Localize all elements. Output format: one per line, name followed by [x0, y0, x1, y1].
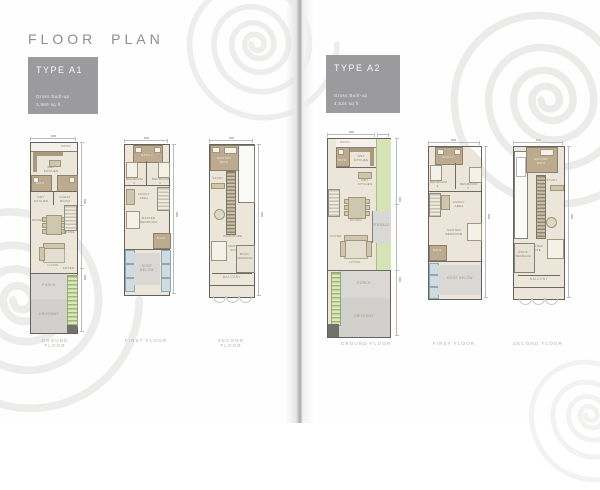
plan-outline: PATIO BATH WET KITCHEN DRY KITCHEN DININ…	[327, 138, 391, 338]
dimension-line	[173, 144, 177, 294]
planter-strip	[331, 272, 341, 326]
bed	[211, 241, 227, 261]
study-desk	[211, 183, 225, 189]
floor-caption-a2-second: SECOND FLOOR	[513, 341, 563, 346]
awning-arc	[213, 296, 226, 303]
floorplan-a1-first: BATH 2 BEDROOM 3 BEDROOM 2 FAMILY AREA M…	[124, 138, 178, 298]
wardrobe-cabinets	[226, 171, 236, 235]
wall	[146, 161, 147, 185]
staircase	[429, 193, 441, 217]
planter-strip	[67, 275, 78, 327]
dining-chair	[42, 223, 47, 228]
utility-block	[328, 324, 339, 337]
dimension-line	[81, 142, 85, 332]
wall	[53, 191, 54, 205]
room-label-study: STUDY	[546, 179, 558, 183]
awning-arc	[545, 298, 558, 305]
bath-fixture	[69, 177, 75, 183]
plan-outline: BATH 2 BEDROOM 3 BEDROOM 2 FAMILY AREA M…	[124, 144, 170, 296]
skylight	[516, 157, 526, 177]
floor-caption-a1-first: FIRST FLOOR	[124, 338, 168, 343]
bed	[467, 223, 482, 241]
kitchen-cabinet	[370, 152, 374, 166]
room-label-roof-terrace: ROOF TERRACE	[237, 253, 252, 260]
dining-chair	[42, 229, 47, 234]
bath-fixture	[212, 147, 220, 153]
type-a2-label: TYPE A2	[334, 63, 381, 73]
sofa	[340, 241, 346, 257]
bath-fixture	[454, 149, 461, 155]
awning-arc	[532, 298, 545, 305]
room-label-driveway: DRIVEWAY	[37, 313, 61, 317]
floorplan-a2-second: MASTER BATH STUDY MASTER SUITE ROOF TERR…	[513, 140, 573, 310]
room-label-balcony: BALCONY	[220, 276, 244, 280]
gross-builtup-value-a2: 4,534 sq ft	[334, 100, 367, 107]
awning-arc	[519, 298, 532, 305]
room-label-bedroom2: BEDROOM 2	[460, 183, 476, 190]
bed	[547, 239, 564, 259]
brochure-spread: FLOOR PLAN TYPE A1 Gross Built-up 3,966 …	[0, 0, 600, 423]
dimension-line	[396, 138, 400, 336]
floor-caption-a2-ground: GROUND FLOOR	[336, 341, 396, 346]
type-a1-label: TYPE A1	[36, 65, 83, 75]
sofa	[126, 189, 135, 205]
wall	[336, 167, 376, 168]
dining-table	[46, 215, 62, 235]
awning-arc	[226, 296, 239, 303]
wall	[31, 191, 77, 192]
room-label-family: FAMILY AREA	[136, 193, 152, 200]
bathtub	[540, 149, 554, 156]
wall	[210, 285, 254, 286]
room-label-roof-below: ROOF BELOW	[135, 265, 159, 273]
staircase	[64, 205, 77, 231]
bed	[126, 211, 140, 229]
room-label-wardrobe: WARDROBE	[223, 235, 237, 239]
glass-louvre	[161, 250, 171, 264]
room-label-bath2: BATH 2	[137, 154, 157, 158]
room-label-dining: DINING	[32, 219, 44, 223]
dining-chair	[344, 205, 349, 210]
type-a1-gross: Gross Built-up 3,966 sq ft	[36, 93, 69, 108]
spiral-watermark-top-center	[171, 0, 341, 129]
side-garden-strip	[376, 139, 391, 270]
room-label-foyer: FOYER	[330, 235, 342, 239]
dining-chair	[365, 211, 370, 216]
room-label-wet-kitchen: WET KITCHEN	[352, 155, 370, 162]
utility-block	[67, 325, 77, 333]
awning-arc	[239, 296, 252, 303]
wall	[125, 185, 169, 186]
room-label-bath: BATH	[35, 182, 45, 186]
living-rug	[43, 247, 65, 263]
wall	[429, 261, 481, 262]
dining-table	[348, 197, 366, 219]
room-label-balcony: BALCONY	[526, 278, 552, 282]
room-label-family: FAMILY AREA	[451, 201, 467, 208]
lounge-chair	[546, 217, 557, 228]
floor-caption-a1-ground: GROUND FLOOR	[30, 338, 80, 348]
plan-outline: MASTER BATH STUDY MASTER SUITE ROOF TERR…	[513, 146, 565, 300]
room-label-bath: BATH	[432, 249, 442, 253]
sofa	[366, 241, 372, 257]
room-label-master-bath: MASTER BATH	[215, 157, 233, 164]
room-label-porch: PORCH	[353, 282, 375, 286]
room-label-dry-kitchen: DRY KITCHEN	[356, 179, 374, 186]
living-rug	[344, 239, 368, 259]
roof-void	[238, 145, 255, 203]
room-label-dry-kitchen: DRY KITCHEN	[32, 196, 50, 203]
floorplan-a1-ground: PATIO WET KITCHEN BATH DRY KITCHEN GUEST…	[30, 136, 86, 336]
type-a1-card: TYPE A1 Gross Built-up 3,966 sq ft	[28, 57, 98, 114]
sofa	[43, 243, 65, 249]
wall	[429, 191, 481, 192]
dimension-line	[568, 146, 572, 298]
gross-builtup-label-a2: Gross Built-up	[334, 92, 367, 99]
gross-builtup-label-a1: Gross Built-up	[36, 93, 69, 100]
glass-louvre	[161, 278, 171, 292]
room-label-roof-below: ROOF BELOW	[447, 277, 473, 281]
room-label-foyer: FOYER	[62, 267, 75, 271]
dining-chair	[365, 199, 370, 204]
room-label-bath: BATH	[156, 237, 166, 241]
room-label-roof-terrace: ROOF TERRACE	[515, 251, 531, 258]
dining-chair	[365, 205, 370, 210]
page-fold	[286, 0, 314, 423]
dining-chair	[344, 199, 349, 204]
room-label-study: STUDY	[212, 177, 224, 181]
floor-caption-a1-second: SECOND FLOOR	[209, 338, 253, 348]
room-label-driveway: DRIVEWAY	[350, 315, 378, 319]
sofa	[344, 235, 368, 241]
bed	[126, 162, 138, 178]
glass-louvre	[161, 264, 171, 278]
room-label-master-bedroom: MASTER BEDROOM	[140, 217, 157, 224]
study-desk	[550, 185, 564, 191]
room-label-wet-kitchen: WET KITCHEN	[41, 166, 61, 173]
floorplan-a2-ground: PATIO BATH WET KITCHEN DRY KITCHEN DININ…	[327, 132, 403, 342]
bath-fixture	[338, 149, 344, 155]
plan-outline: PATIO WET KITCHEN BATH DRY KITCHEN GUEST…	[30, 142, 78, 334]
room-label-dining: DINING	[348, 219, 364, 223]
bed	[469, 167, 482, 183]
room-label-bath2: BATH 2	[438, 156, 458, 160]
type-a2-card: TYPE A2 Gross Built-up 4,534 sq ft	[326, 55, 400, 113]
bathtub	[224, 147, 237, 154]
bath-fixture	[154, 147, 161, 153]
kitchen-cabinet	[33, 152, 63, 156]
staircase	[328, 189, 340, 217]
room-label-terrace: TERRACE	[372, 224, 389, 228]
wall	[455, 163, 456, 189]
floor-caption-a2-first: FIRST FLOOR	[428, 341, 480, 346]
room-label-store: STORE	[63, 231, 75, 235]
wardrobe-cabinets	[536, 175, 546, 239]
wall	[514, 287, 564, 288]
staircase	[157, 187, 170, 211]
plan-outline: BATH 2 BEDROOM 3 BEDROOM 2 FAMILY AREA M…	[428, 146, 482, 300]
floorplan-a2-first: BATH 2 BEDROOM 3 BEDROOM 2 FAMILY AREA M…	[428, 140, 490, 300]
room-label-patio: PATIO	[338, 141, 352, 145]
plan-outline: MASTER BATH STUDY WARDROBE MASTER SUITE …	[209, 144, 255, 298]
lounge-chair	[214, 209, 225, 220]
room-label-bedroom3: BEDROOM 3	[430, 181, 445, 188]
angled-corner	[470, 147, 481, 158]
sofa	[39, 247, 45, 261]
room-label-bath: BATH	[336, 159, 348, 163]
room-label-living: LIVING	[348, 261, 362, 265]
gross-builtup-value-a1: 3,966 sq ft	[36, 101, 69, 108]
bed	[158, 162, 170, 178]
floorplan-a1-second: MASTER BATH STUDY WARDROBE MASTER SUITE …	[209, 138, 263, 308]
dimension-line	[485, 146, 489, 298]
room-label-master-bath: MASTER BATH	[531, 158, 551, 165]
sofa	[441, 195, 450, 210]
room-label-living: LIVING	[46, 264, 60, 268]
spiral-watermark-bottom-right	[515, 340, 600, 490]
bed	[430, 165, 442, 181]
type-a2-gross: Gross Built-up 4,534 sq ft	[334, 92, 367, 107]
room-label-guest-room: GUEST ROOM	[56, 196, 74, 203]
dimension-line	[258, 144, 262, 296]
room-label-porch: PORCH	[39, 284, 59, 288]
page-title: FLOOR PLAN	[28, 31, 164, 47]
room-label-patio: PATIO	[58, 145, 74, 149]
room-label-master-bedroom: MASTER BEDROOM	[445, 229, 463, 236]
kitchen-cabinet	[33, 156, 37, 172]
dining-chair	[344, 211, 349, 216]
